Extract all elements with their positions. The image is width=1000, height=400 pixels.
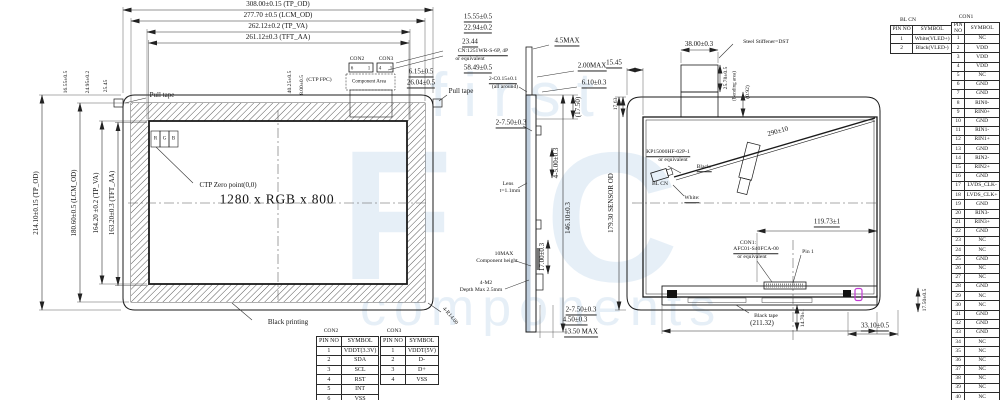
table-cell: 13 [952,145,965,154]
con1-note-1: CON1: [740,240,756,246]
table-cell: GND [965,172,1000,181]
table-row: 3SCL [317,365,379,375]
table-cell: 32 [952,319,965,328]
wire-white-label: White: [684,195,699,203]
table-cell: 2 [952,44,965,53]
table-row: 30NC [952,301,1000,310]
dim-1350max: 13.50 MAX [564,328,598,337]
table-row: 2VDD [952,44,1000,53]
table-cell: 35 [952,347,965,356]
table-row: 1White(VLED+) [891,35,952,44]
table-row: 40NC [952,393,1000,400]
dim-3310: 33.10±0.5 [861,322,889,331]
table-row: 13GND [952,145,1000,154]
table-cell: 26 [952,264,965,273]
dim-tp-od-height: 214.10±0.15 (TP_OD) [33,171,41,235]
table-row: 38NC [952,374,1000,383]
table-cell: NC [965,71,1000,80]
table-cell: 14 [952,154,965,163]
cn-part-number: CN:1251WR-S-6P, 4P [458,48,508,56]
table-cell: 28 [952,283,965,292]
table-header-row: PIN NO SYMBOL [952,23,1000,35]
table-row: 27NC [952,273,1000,282]
lens-thickness-label: t=1.1mm [500,188,520,194]
dim-chamfer-2: (all around) [492,84,518,90]
table-cell: NC [965,347,1000,356]
table-cell: NC [965,273,1000,282]
table-cell: 18 [952,191,965,200]
pixel-r-label: R [154,136,157,141]
table-cell: 9 [952,108,965,117]
table-cell: NC [965,374,1000,383]
table-cell: NC [965,237,1000,246]
table-cell: GND [965,227,1000,236]
bl-part-number: KP15000HF-02P-1 [646,149,690,157]
dim-610: 6.10±0.3 [582,79,607,88]
table-cell: NC [965,301,1000,310]
wire-black-label: Black: [697,164,712,172]
component-height-label-2: Component height [476,258,517,264]
table-row: 39NC [952,384,1000,393]
table-row: 2SDA [317,356,379,366]
table-row: 1VDDT(5V) [381,346,439,356]
table-cell: VDDT(3.3V) [341,346,379,356]
con2-pin1-mark: 1 [368,66,371,71]
pull-tape-right-label: Pull tape [449,88,474,96]
dim-right-4: 58.49±0.5 [464,64,492,73]
table-cell: 38 [952,374,965,383]
table-row: 17LVDS_CLK- [952,182,1000,191]
dim-450: 4.50±0.3 [563,316,588,325]
table-row: 37NC [952,365,1000,374]
table-row: 23NC [952,237,1000,246]
dim-tp-od-width: 308.00±0.15 (TP_OD) [246,1,310,9]
table-cell: 3 [317,365,342,375]
dim-lcm-od-width: 277.70 ±0.5 (LCM_OD) [244,12,313,20]
table-cell: Black(VLED-) [913,44,952,53]
table-cell: 1 [381,346,406,356]
table-row: 26NC [952,264,1000,273]
dim-tp-va-width: 262.12±0.2 (TP_VA) [248,23,307,31]
table-row: 31GND [952,310,1000,319]
col-symbol: SYMBOL [341,337,379,347]
table-cell: VDD [965,53,1000,62]
table-cell: NC [965,264,1000,273]
pcb-component-right [843,290,851,297]
con1-pin-table: PIN NO SYMBOL 1NC2VDD3VDD4VDD5NC6GND7GND… [951,22,1000,400]
table-cell: 3 [381,365,406,375]
table-row: 29NC [952,292,1000,301]
dim-2578: 25.78±0.5 [723,67,729,90]
engineering-drawing-page: first F C components [0,0,1000,400]
table-cell: 34 [952,338,965,347]
dim-1763: 17.63 [613,98,619,111]
back-module-outline [643,117,877,297]
table-cell: GND [965,200,1000,209]
table-cell: 4 [317,375,342,385]
table-row: 4VSS [381,375,439,385]
table-cell: RST [341,375,379,385]
table-cell: GND [965,117,1000,126]
table-row: 6VSS [317,394,379,400]
table-cell: VDD [965,62,1000,71]
table-cell: D- [405,356,438,366]
table-cell: RIN0+ [965,108,1000,117]
table-cell: GND [965,80,1000,89]
dim-200max: 2.00MAX [578,62,607,71]
dim-750-top: 2-7.50±0.3 [496,119,527,128]
table-row: 3VDD [952,53,1000,62]
dim-con-4025: 40.25±0.5 [287,71,293,94]
bl-cn-connector [651,167,674,182]
cn-part-number-2: or equivalent [455,56,484,62]
black-tape-label: Black tape [754,313,778,319]
table-cell: 27 [952,273,965,282]
dim-tft-aa-width: 261.12±0.3 (TFT_AA) [246,34,310,42]
table-row: 25GND [952,255,1000,264]
table-cell: NC [965,246,1000,255]
table-cell: NC [965,338,1000,347]
bl-cn-table-title: BL CN [900,17,916,23]
table-cell: 4 [381,375,406,385]
table-cell: RIN2+ [965,163,1000,172]
table-cell: GND [965,255,1000,264]
table-cell: 7 [952,90,965,99]
table-cell: SDA [341,356,379,366]
con3-label: CON3 [379,56,394,62]
table-cell: GND [965,310,1000,319]
dim-right-3: 23.44 [462,38,478,47]
table-cell: 2 [381,356,406,366]
dim-tp-va-height: 164.20 ±0.2 (TP_VA) [93,173,101,234]
screw-spec-label-1: 4-M2 [480,280,492,286]
dim-top-offset-2: 24.95±0.2 [85,71,91,94]
bl-part-number-2: or equivalent [658,157,687,163]
col-symbol: SYMBOL [965,23,1000,35]
table-cell: NC [965,356,1000,365]
table-cell: 19 [952,200,965,209]
table-cell: 30 [952,301,965,310]
table-row: 2Black(VLED-) [891,44,952,53]
con1-table-title: CON1 [959,14,974,20]
table-row: 24NC [952,246,1000,255]
dim-top-offset-3: 25.45 [103,80,109,93]
table-cell: GND [965,319,1000,328]
table-cell: 39 [952,384,965,393]
table-cell: 40 [952,393,965,400]
table-cell: 5 [952,71,965,80]
dim-14610: 146.10±0.3 [565,202,573,234]
pull-tape-left-label: Pull tape [150,92,175,100]
dim-750-bottom: 2-7.50±0.3 [566,306,597,315]
table-header-row: PIN NO SYMBOL [317,337,379,347]
table-cell: 16 [952,172,965,181]
resolution-label: 1280 x RGB x 800 [220,193,335,208]
table-cell: RIN1- [965,126,1000,135]
table-row: 7GND [952,90,1000,99]
dim-1545: 15.45 [606,59,622,68]
table-cell: 24 [952,246,965,255]
con3-pin4-mark: 4 [379,66,382,71]
ctp-fpc-label: (CTP FPC) [306,77,331,83]
table-cell: SCL [341,365,379,375]
table-cell: INT [341,384,379,394]
col-pin-no: PIN NO [952,23,965,35]
table-cell: 6 [952,80,965,89]
table-row: 35NC [952,347,1000,356]
table-cell: VDDT(5V) [405,346,438,356]
table-cell: 8 [952,99,965,108]
table-cell: 33 [952,329,965,338]
table-cell: 15 [952,163,965,172]
table-cell: RIN0- [965,99,1000,108]
pixel-b-label: B [172,136,175,141]
con2-pin6-mark: 6 [351,66,354,71]
steel-stiffener [681,65,718,92]
table-cell: 10 [952,117,965,126]
table-cell: VDD [965,44,1000,53]
front-view [39,7,447,320]
bl-cn-label: BL CN [652,181,668,187]
pixel-g-label: G [163,136,167,141]
table-row: 34NC [952,338,1000,347]
steel-stiffener-label: Steel Stiffener=DST [743,39,789,45]
dim-1750-ref: (17.50) [575,97,583,117]
con3-pin1-mark: 1 [390,66,393,71]
dim-11973: 119.73±1 [814,218,840,227]
table-row: 22GND [952,227,1000,236]
dim-con-800: 8.00±0.5 [299,75,305,95]
table-header-row: PIN NO SYMBOL [891,26,952,35]
dim-top-offset-1: 16.55±0.5 [63,71,69,94]
side-screw-boss [536,274,543,290]
table-row: 21RIN3+ [952,218,1000,227]
black-printing-label: Black printing [268,319,308,327]
component-height-label-1: 10MAX [495,251,514,257]
table-cell: RIN1+ [965,136,1000,145]
table-cell: NC [965,35,1000,44]
table-row: 4RST [317,375,379,385]
table-cell: RIN2- [965,154,1000,163]
table-cell: NC [965,365,1000,374]
cable-sleeve [735,142,760,195]
ctp-zero-point-label: CTP Zero point(0,0) [199,182,256,190]
table-cell: 37 [952,365,965,374]
magenta-mark [855,289,862,301]
table-cell: 1 [317,346,342,356]
table-cell: NC [965,292,1000,301]
table-cell: 2 [317,356,342,366]
col-pin-no: PIN NO [381,337,406,347]
pcb-component-left [667,290,677,298]
table-cell: GND [965,283,1000,292]
dim-con-2604: 26.04±0.5 [407,79,435,88]
table-row: 20RIN3- [952,209,1000,218]
dim-092: (0.92) [745,85,751,99]
table-row: 3D+ [381,365,439,375]
table-cell: 1 [952,35,965,44]
back-view [615,44,918,340]
table-row: 5INT [317,384,379,394]
table-cell: 36 [952,356,965,365]
table-cell: RIN3+ [965,218,1000,227]
table-row: 32GND [952,319,1000,328]
con1-note-3: or equivalent [737,254,766,260]
table-cell: 31 [952,310,965,319]
black-printing-leader [232,303,252,320]
side-lens-tint [527,96,531,332]
table-cell: 21 [952,218,965,227]
table-row: 15RIN2+ [952,163,1000,172]
con3-table-title: CON3 [387,328,402,334]
dim-21132: (211.32) [750,320,774,328]
con3-pin-table: PIN NO SYMBOL 1VDDT(5V)2D-3D+4VSS [380,336,439,385]
dim-45max: 4.5MAX [554,37,579,46]
table-row: 33GND [952,329,1000,338]
table-cell: LVDS_CLK- [965,182,1000,191]
dim-3800: 38.00±0.3 [685,41,713,49]
pin1-label: Pin 1 [802,249,814,255]
bending-area-label: (Bending area) [732,71,737,101]
table-row: 11RIN1- [952,126,1000,135]
table-cell: VSS [405,375,438,385]
table-row: 1VDDT(3.3V) [317,346,379,356]
table-cell: D+ [405,365,438,375]
table-cell: GND [965,145,1000,154]
table-cell: NC [965,393,1000,400]
table-cell: 25 [952,255,965,264]
screw-spec-label-2: Depth Max 2.5mm [460,287,502,293]
table-cell: VSS [341,394,379,400]
table-cell: 12 [952,136,965,145]
sensor-od-label: 179.30 SENSOR OD [608,173,616,233]
con2-pin-table: PIN NO SYMBOL 1VDDT(3.3V)2SDA3SCL4RST5IN… [316,336,379,400]
table-cell: GND [965,90,1000,99]
dim-500: 4-5.00±0.3 [553,148,561,179]
table-cell: 5 [317,384,342,394]
con2-label: CON2 [350,56,365,62]
table-row: 36NC [952,356,1000,365]
bl-cn-pin-table: PIN NO SYMBOL 1White(VLED+)2Black(VLED-) [890,25,952,54]
side-fpc-stem [526,47,532,95]
table-row: 19GND [952,200,1000,209]
table-row: 6GND [952,80,1000,89]
table-cell: 29 [952,292,965,301]
table-cell: RIN3- [965,209,1000,218]
component-area-label: Component Area [352,79,386,84]
ctp-zero-leader [156,147,193,183]
table-row: 14RIN2- [952,154,1000,163]
stiffener-bend-area [681,92,718,117]
dim-chamfer: 2-C0.15±0.1 [489,76,517,84]
table-cell: GND [965,329,1000,338]
con1-note-2: AFC01-S40FCA-00 [733,246,778,254]
table-row: 18LVDS_CLK+ [952,191,1000,200]
pull-tape-tab-right [433,99,442,107]
col-pin-no: PIN NO [317,337,342,347]
table-cell: 23 [952,237,965,246]
dim-tft-aa-height: 163.20±0.3 (TFT_AA) [109,171,117,235]
table-cell: 20 [952,209,965,218]
col-pin-no: PIN NO [891,26,913,35]
table-row: 10GND [952,117,1000,126]
table-row: 16GND [952,172,1000,181]
table-row: 5NC [952,71,1000,80]
table-cell: White(VLED+) [913,35,952,44]
table-cell: 22 [952,227,965,236]
table-cell: 1 [891,35,913,44]
col-symbol: SYMBOL [405,337,438,347]
dim-1700: 17.00±0.3 [539,243,547,271]
table-row: 4VDD [952,62,1000,71]
con2-table-title: CON2 [324,328,339,334]
dim-lcm-od-height: 180.60±0.5 (LCM_OD) [71,169,79,236]
table-row: 8RIN0- [952,99,1000,108]
drawing-linework [0,0,1000,400]
dim-con-615: 6.15±0.5 [409,68,434,77]
back-sensor-outline [627,97,880,310]
table-cell: 4 [952,62,965,71]
table-cell: 2 [891,44,913,53]
table-cell: 6 [317,394,342,400]
table-cell: NC [965,384,1000,393]
dim-right-2: 22.94±0.2 [464,24,492,33]
col-symbol: SYMBOL [913,26,952,35]
dim-1470: 14.70±1 [800,309,806,327]
table-cell: 17 [952,182,965,191]
table-row: 9RIN0+ [952,108,1000,117]
dim-1750-right: 17.50±0.5 [922,289,928,312]
table-row: 1NC [952,35,1000,44]
table-cell: LVDS_CLK+ [965,191,1000,200]
table-row: 2D- [381,356,439,366]
table-row: 28GND [952,283,1000,292]
table-cell: 3 [952,53,965,62]
table-cell: 11 [952,126,965,135]
table-row: 12RIN1+ [952,136,1000,145]
lens-label: Lens [503,181,514,187]
dim-right-1: 15.55±0.5 [464,13,492,22]
table-header-row: PIN NO SYMBOL [381,337,439,347]
